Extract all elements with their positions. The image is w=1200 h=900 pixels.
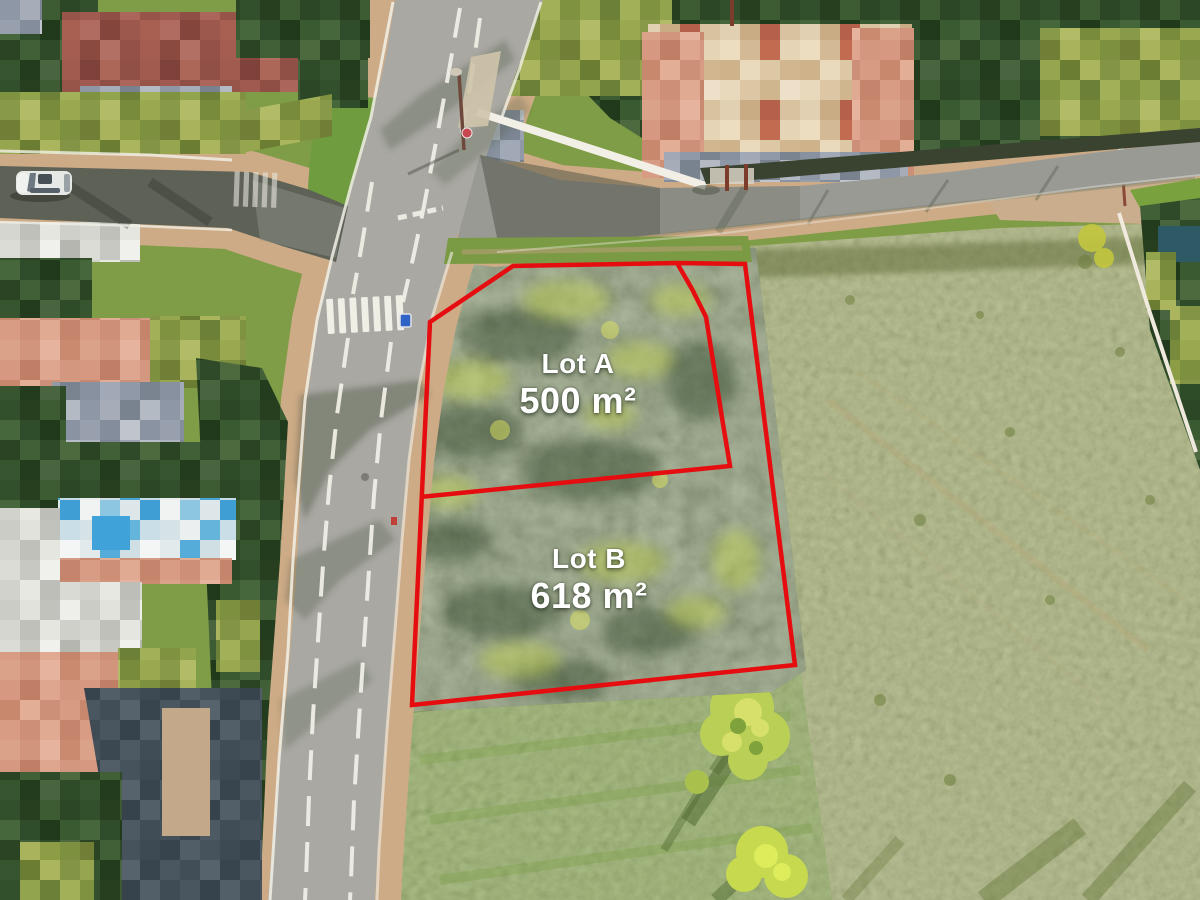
- gate-post: [744, 164, 748, 190]
- hydrant: [391, 517, 397, 525]
- round-sign: [462, 128, 472, 138]
- aerial-photo-canvas: [0, 0, 1200, 900]
- pixelated-pool: [58, 498, 236, 560]
- pedestrian-sign: [400, 314, 411, 327]
- aerial-photo: Lot A 500 m² Lot B 618 m²: [0, 0, 1200, 900]
- pole: [730, 0, 734, 26]
- gate-post: [725, 165, 729, 191]
- manhole: [361, 473, 369, 481]
- car-sunroof: [38, 174, 52, 184]
- car-rear-window: [64, 174, 70, 192]
- car: [10, 171, 72, 202]
- streetlight-head: [450, 68, 462, 76]
